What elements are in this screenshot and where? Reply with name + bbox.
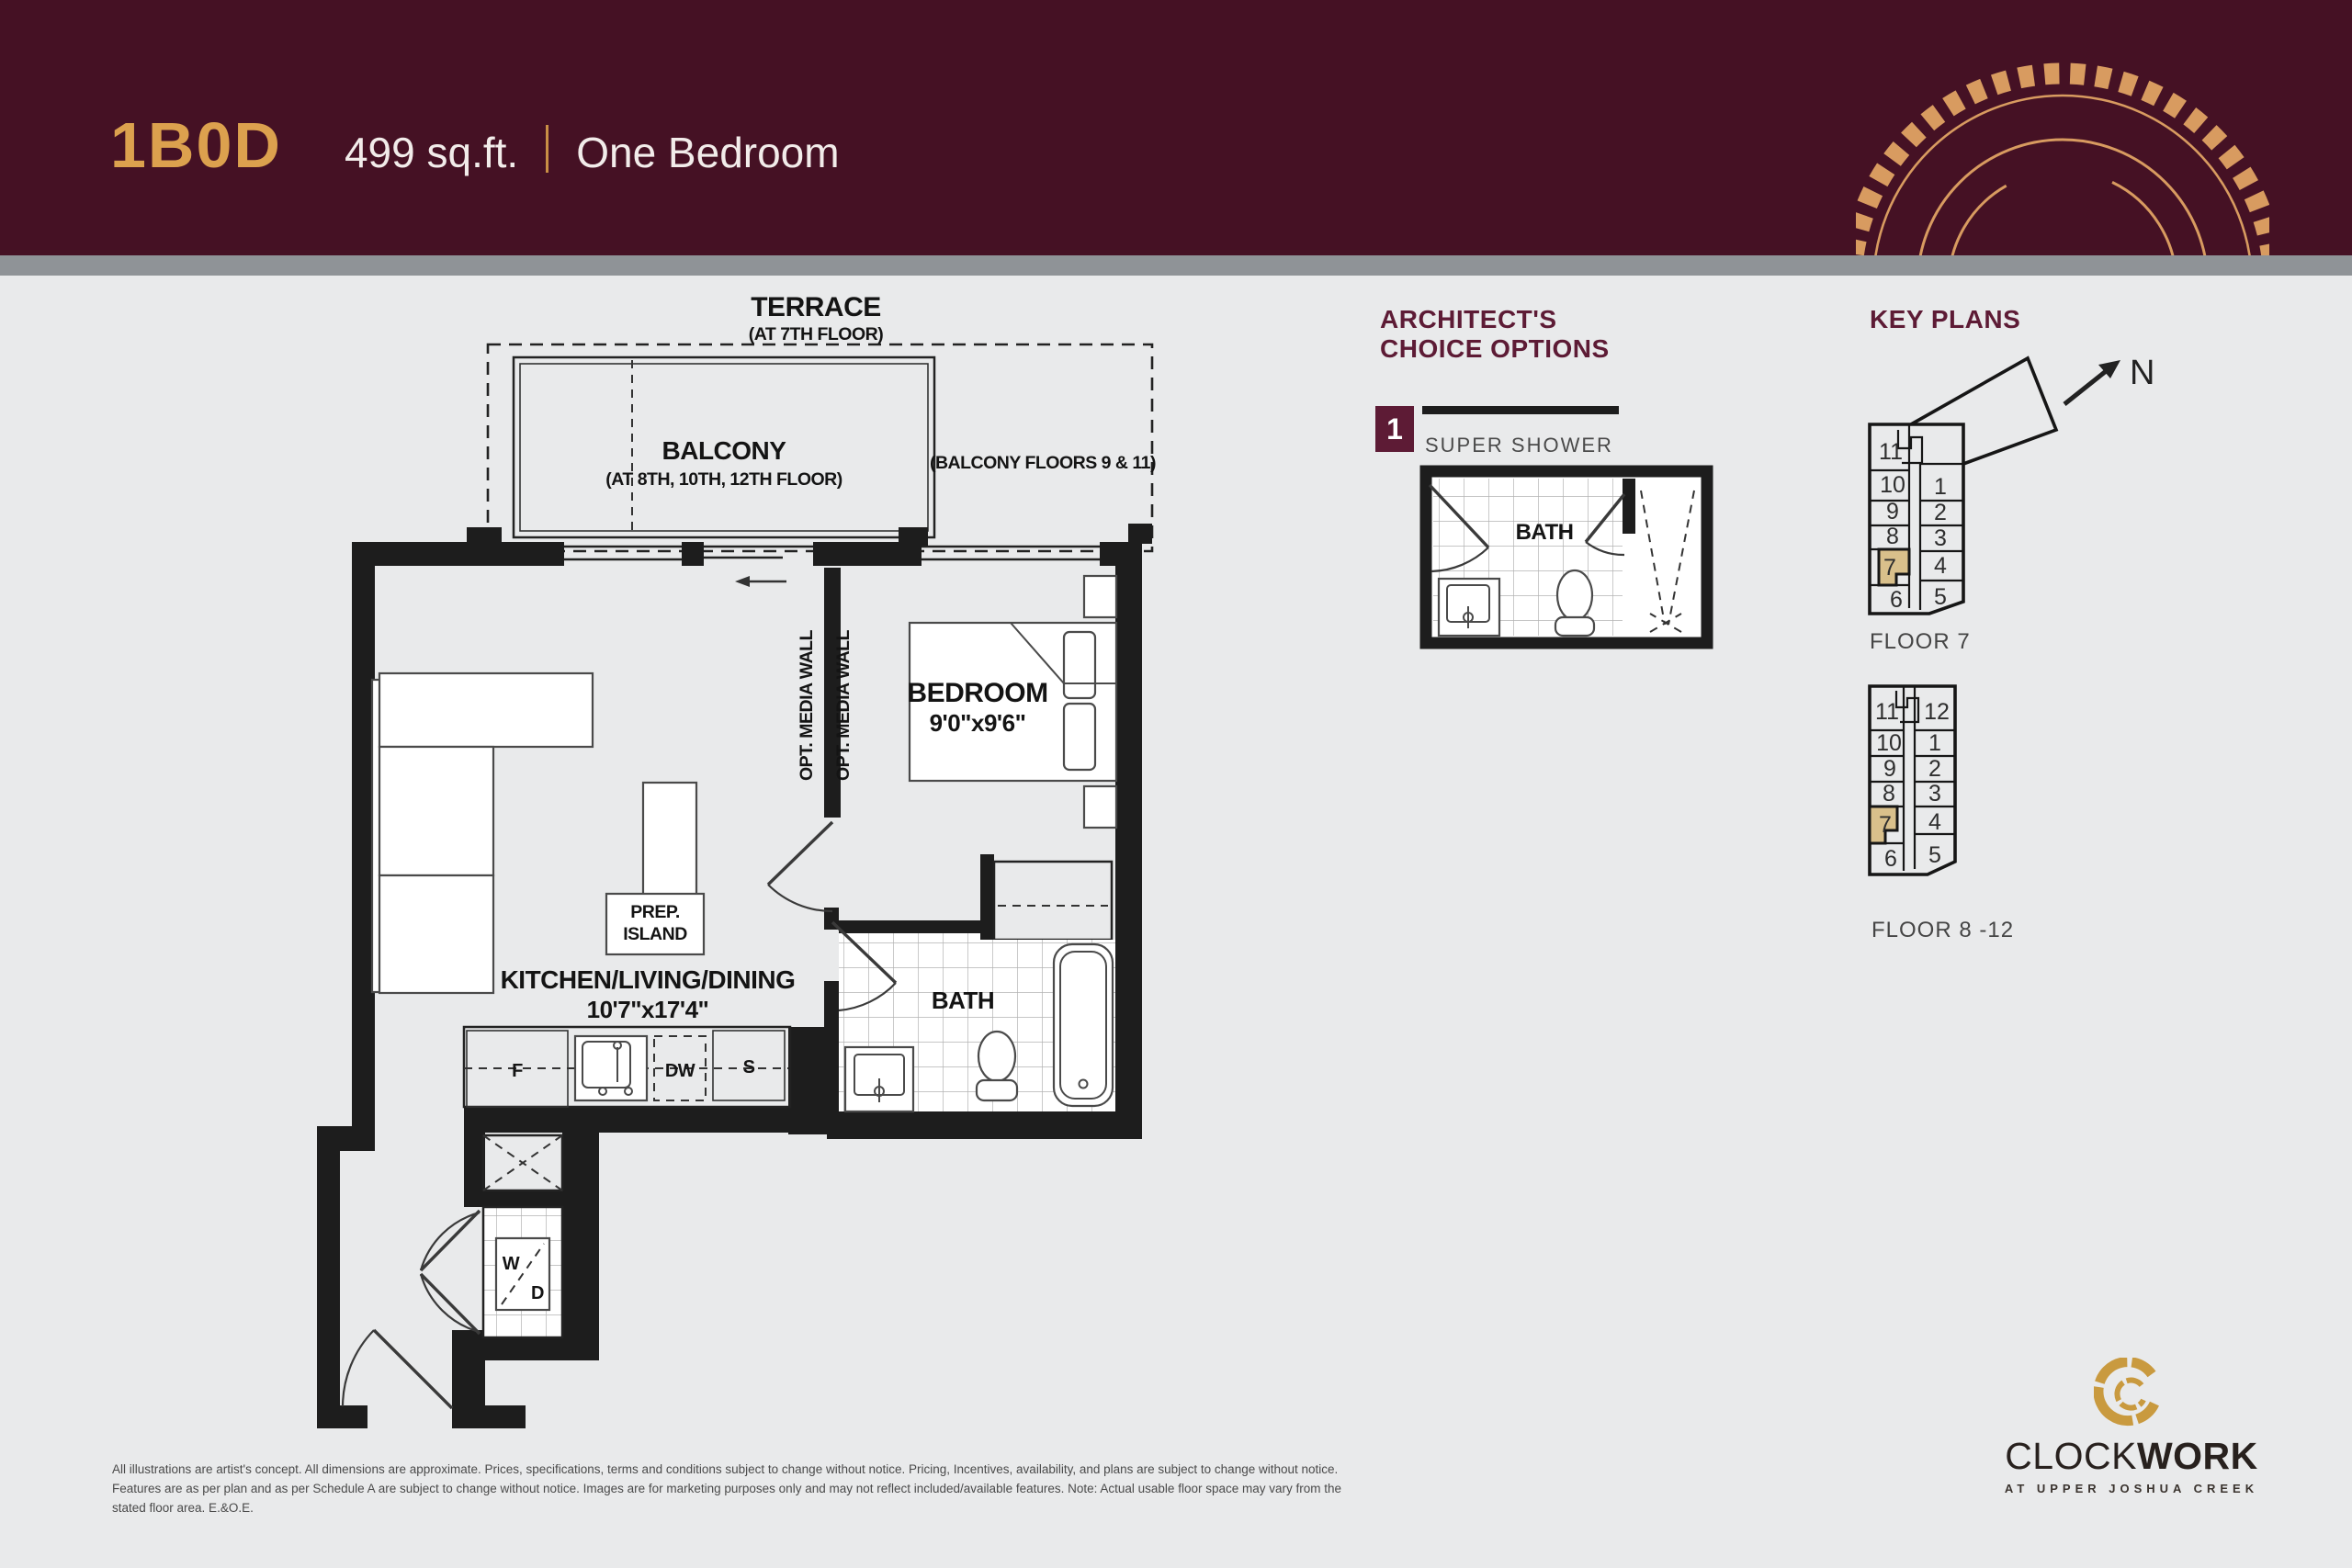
keyplan-floor8-12: 11 10 9 8 7 6 12 1 2 3 4 5 FLOOR 8 -12	[1870, 686, 2014, 942]
laundry-doors	[421, 1211, 480, 1334]
entry-door	[343, 1330, 452, 1408]
svg-text:9: 9	[1883, 756, 1896, 782]
brand-logo: CLOCKWORK AT UPPER JOSHUA CREEK	[1994, 1358, 2269, 1495]
svg-text:1: 1	[1928, 730, 1941, 756]
option-1-badge: 1	[1375, 406, 1414, 452]
terrace-outline	[467, 344, 1152, 551]
svg-text:10: 10	[1876, 730, 1902, 756]
svg-text:6: 6	[1884, 846, 1897, 872]
media-wall-label-left: OPT. MEDIA WALL	[797, 629, 817, 781]
svg-text:11: 11	[1875, 699, 1899, 725]
sliding-door-arrow-icon	[735, 576, 786, 587]
floorplan-sheet: 1B0D 499 sq.ft. One Bedroom TERRACE (AT …	[0, 0, 2352, 1568]
media-wall-label-right: OPT. MEDIA WALL	[833, 629, 854, 781]
svg-text:4: 4	[1934, 553, 1947, 579]
key-plans-heading: KEY PLANS	[1870, 305, 2020, 334]
svg-text:7: 7	[1879, 812, 1892, 838]
svg-text:7: 7	[1883, 555, 1896, 581]
architects-choice-heading: ARCHITECT'S CHOICE OPTIONS	[1380, 305, 1610, 364]
disclaimer-text: All illustrations are artist's concept. …	[112, 1461, 1375, 1518]
terrace-label: TERRACE	[751, 292, 881, 322]
bath-label: BATH	[932, 987, 994, 1014]
aco-heading-line1: ARCHITECT'S	[1380, 305, 1610, 334]
aco-heading-line2: CHOICE OPTIONS	[1380, 334, 1610, 364]
bedroom-label: BEDROOM	[907, 678, 1047, 708]
north-arrow-icon	[2064, 360, 2120, 404]
laundry-room	[483, 1207, 562, 1337]
counter-s-label: S	[743, 1057, 755, 1077]
floor8-12-caption: FLOOR 8 -12	[1871, 918, 2014, 942]
svg-text:1: 1	[1934, 474, 1947, 500]
island-label-2: ISLAND	[623, 924, 687, 944]
entry-closet	[483, 1135, 562, 1190]
brand-name-right: WORK	[2137, 1435, 2258, 1477]
brand-subtitle: AT UPPER JOSHUA CREEK	[1994, 1482, 2269, 1495]
svg-text:9: 9	[1886, 499, 1899, 525]
svg-text:11: 11	[1879, 439, 1903, 465]
living-dims: 10'7"x17'4"	[587, 996, 709, 1023]
svg-text:12: 12	[1924, 699, 1950, 725]
svg-text:8: 8	[1886, 524, 1899, 549]
svg-text:8: 8	[1883, 781, 1895, 807]
svg-text:2: 2	[1928, 756, 1941, 782]
sofa	[372, 673, 593, 993]
svg-text:6: 6	[1890, 587, 1903, 613]
bedroom-closet	[994, 862, 1112, 940]
super-shower-diagram	[1426, 471, 1707, 643]
fridge-label: F	[512, 1061, 523, 1081]
svg-text:5: 5	[1928, 842, 1941, 868]
dryer-label: D	[531, 1283, 544, 1303]
floor-plan-canvas: TERRACE (AT 7TH FLOOR) BALCONY (AT 8TH, …	[0, 0, 2352, 1568]
bath-room	[832, 922, 1115, 1111]
bedroom-door	[768, 822, 832, 911]
option-bath-label: BATH	[1516, 520, 1574, 545]
dishwasher-label: DW	[665, 1061, 695, 1081]
option-item-label: SUPER SHOWER	[1425, 434, 1613, 457]
floor7-caption: FLOOR 7	[1870, 629, 1971, 654]
terrace-sub-label: (AT 7TH FLOOR)	[749, 324, 883, 344]
svg-text:5: 5	[1934, 584, 1947, 610]
balcony-label: BALCONY	[662, 436, 787, 465]
clockwork-c-icon	[2094, 1358, 2169, 1433]
keyplan-floor7: 11 10 9 8 7 6 1 2 3 4 5 FLOOR 7	[1870, 358, 2056, 654]
brand-name: CLOCKWORK	[1994, 1435, 2269, 1478]
living-label: KITCHEN/LIVING/DINING	[501, 965, 796, 994]
balcony-alt-label: (BALCONY FLOORS 9 & 11)	[930, 453, 1156, 473]
balcony-sub-label: (AT 8TH, 10TH, 12TH FLOOR)	[605, 469, 842, 490]
svg-text:4: 4	[1928, 809, 1941, 835]
svg-text:3: 3	[1934, 525, 1947, 551]
svg-text:3: 3	[1928, 781, 1941, 807]
brand-name-left: CLOCK	[2005, 1435, 2137, 1477]
washer-label: W	[503, 1254, 520, 1274]
svg-text:2: 2	[1934, 500, 1947, 525]
island-label-1: PREP.	[630, 902, 680, 922]
north-label: N	[2130, 354, 2154, 392]
svg-text:10: 10	[1880, 472, 1905, 498]
option-rule	[1422, 406, 1619, 414]
bedroom-dims: 9'0"x9'6"	[930, 709, 1026, 737]
